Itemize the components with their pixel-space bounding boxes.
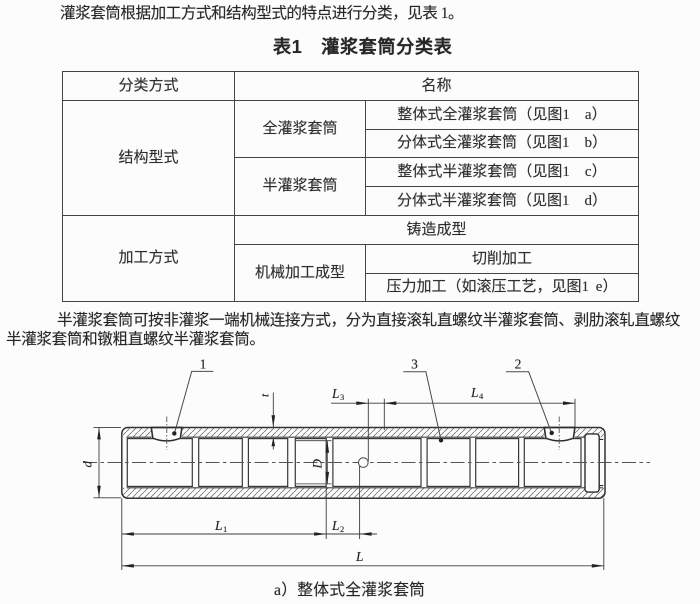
svg-text:3: 3 bbox=[411, 357, 418, 372]
svg-text:2: 2 bbox=[515, 357, 522, 372]
svg-text:L: L bbox=[214, 518, 223, 533]
svg-text:1: 1 bbox=[223, 524, 227, 534]
svg-text:D: D bbox=[310, 459, 325, 470]
svg-text:L: L bbox=[331, 518, 340, 533]
svg-text:t: t bbox=[260, 393, 272, 397]
svg-text:4: 4 bbox=[479, 391, 484, 401]
svg-text:1: 1 bbox=[200, 357, 207, 372]
svg-text:3: 3 bbox=[340, 392, 344, 402]
svg-text:L: L bbox=[355, 549, 364, 564]
svg-text:L: L bbox=[470, 385, 479, 400]
svg-text:L: L bbox=[331, 386, 340, 401]
svg-text:2: 2 bbox=[340, 524, 344, 534]
svg-text:d: d bbox=[80, 461, 95, 468]
